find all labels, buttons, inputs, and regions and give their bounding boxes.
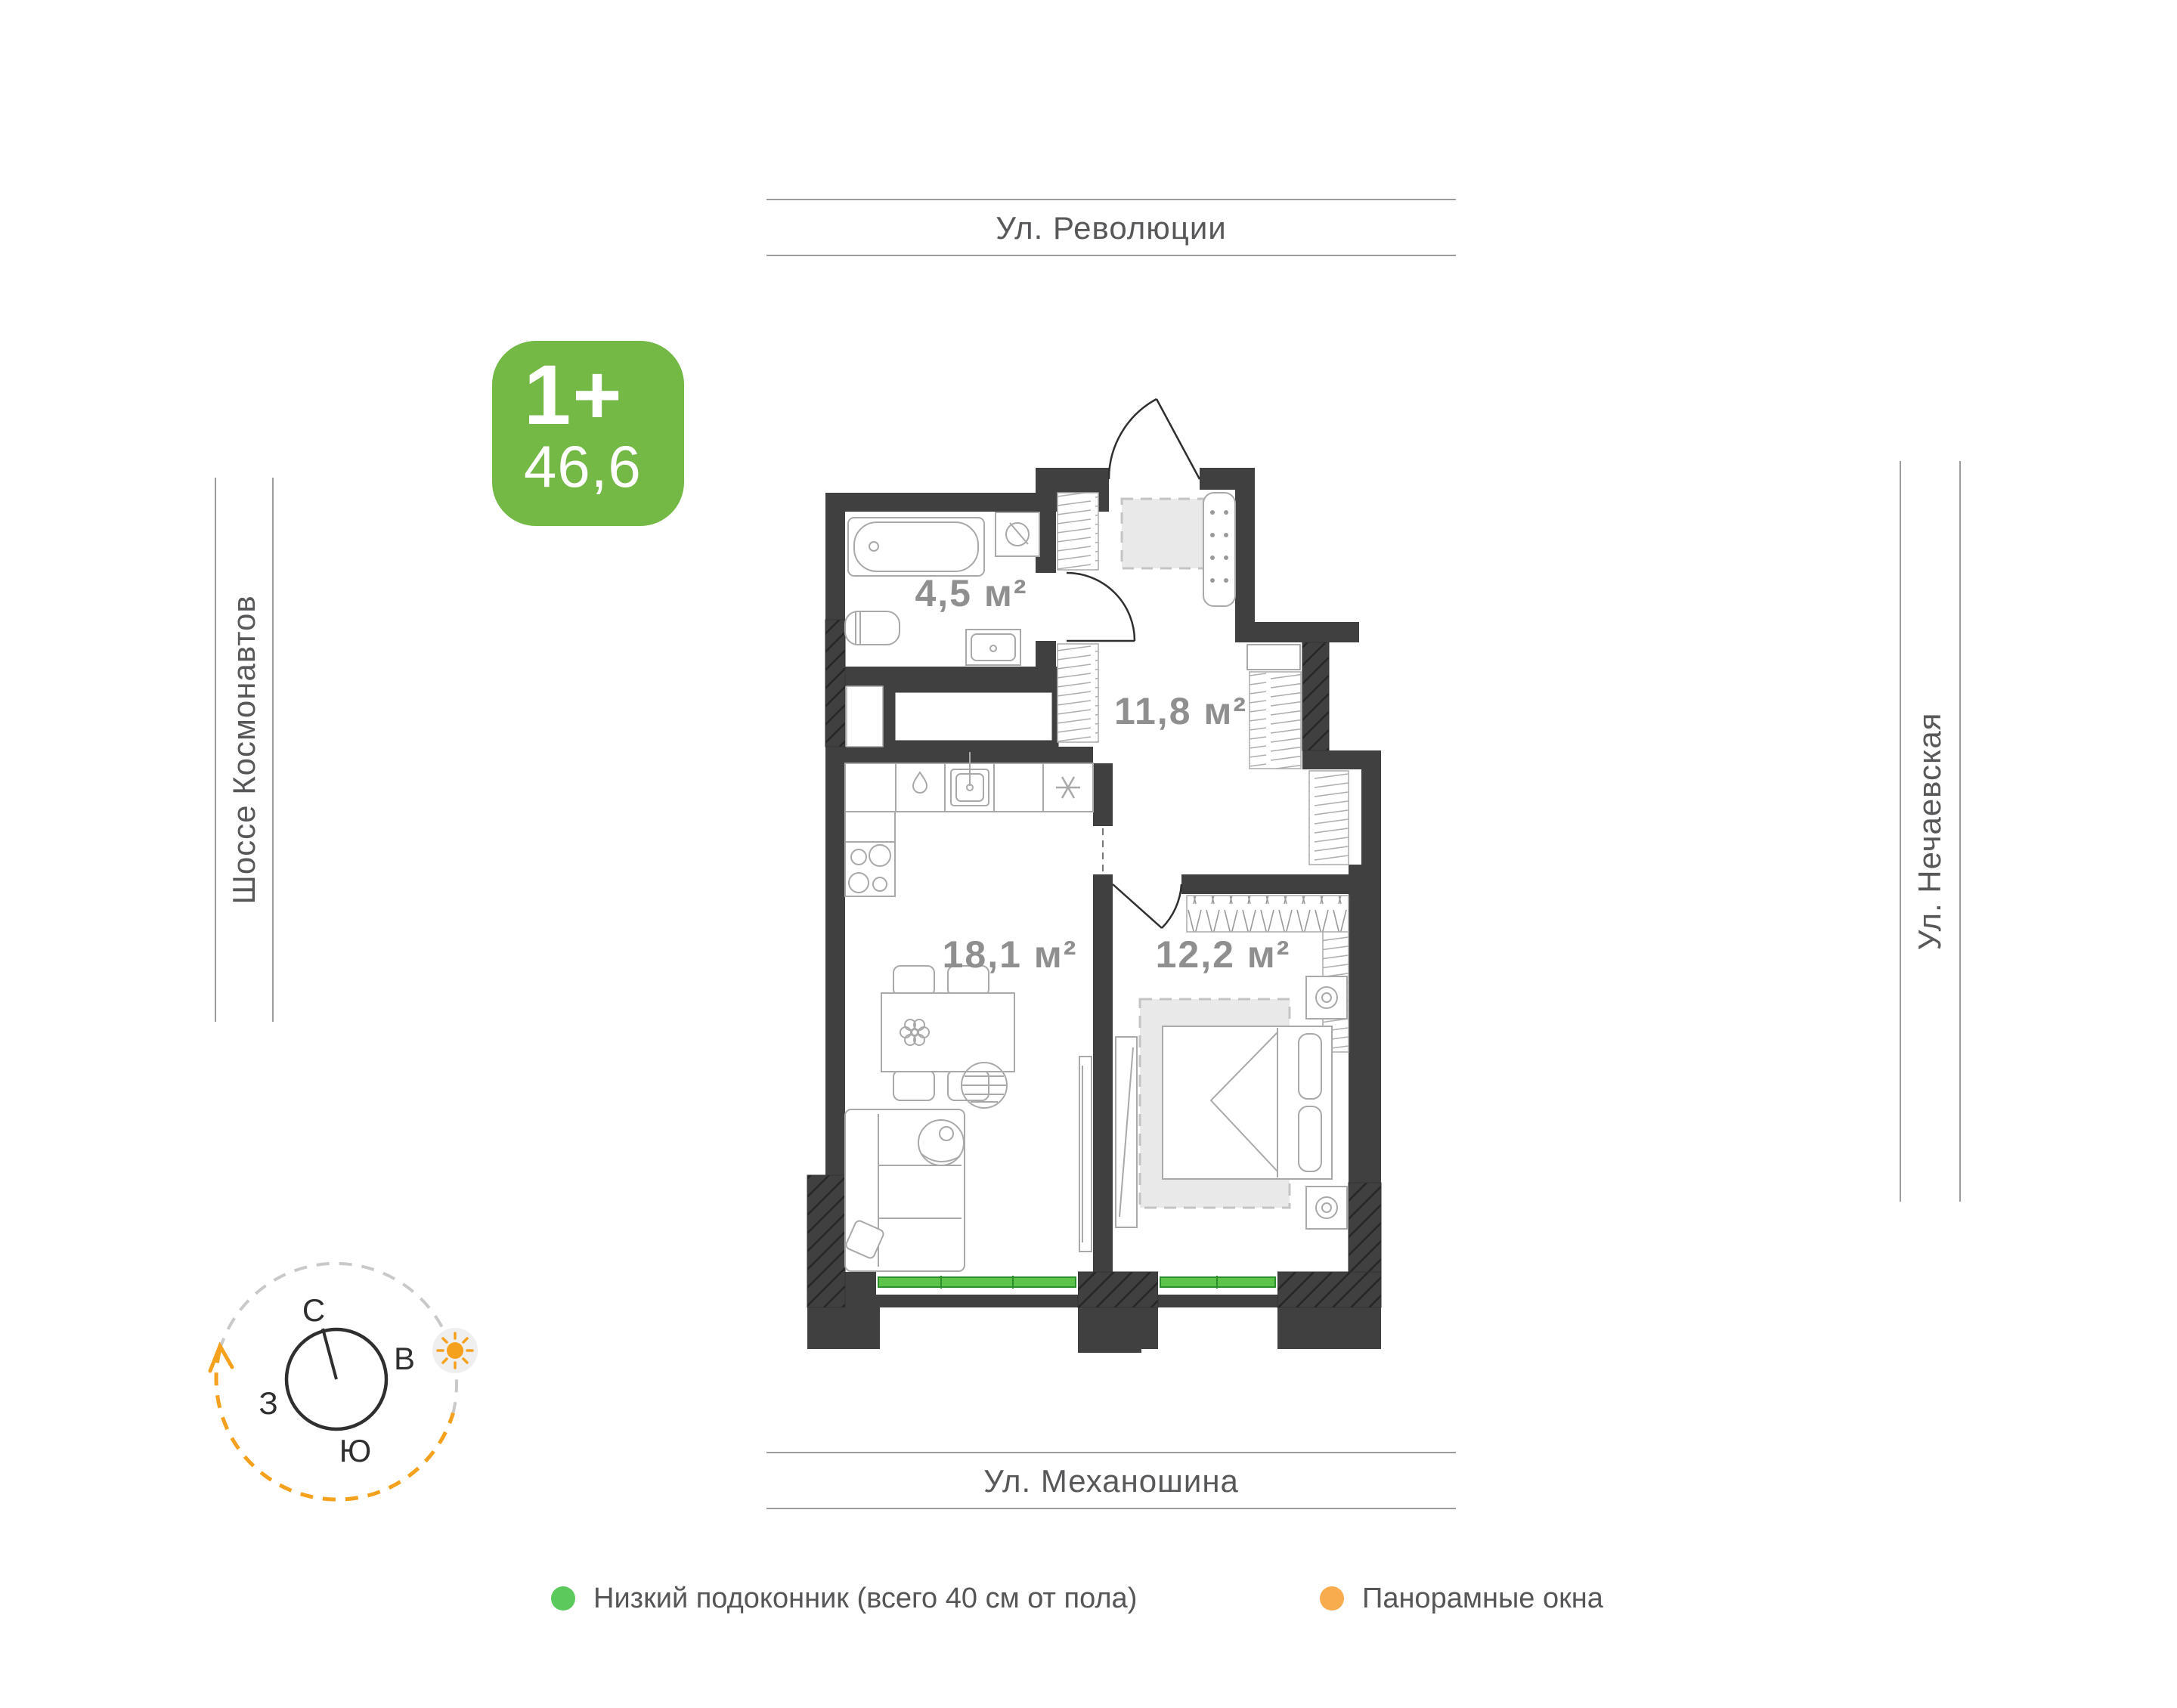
washing-machine-icon	[996, 512, 1039, 556]
dining-table	[881, 993, 1014, 1072]
room-area-bathroom: 4,5 м²	[915, 572, 1027, 614]
legend-item-low-sill: Низкий подоконник (всего 40 см от пола)	[551, 1581, 1137, 1616]
room-area-bedroom: 12,2 м²	[1156, 933, 1291, 976]
street-line-left-2	[272, 478, 274, 1022]
compass-north: С	[302, 1292, 325, 1328]
low-sill-dot-icon	[551, 1586, 575, 1611]
apartment-badge: 1+ 46,6	[492, 341, 684, 526]
nightstand-icon	[1306, 1187, 1347, 1229]
windows	[876, 1272, 1277, 1295]
street-line-right-2	[1959, 461, 1961, 1202]
kitchen-furniture	[845, 752, 1093, 896]
bathtub-icon	[848, 518, 984, 576]
compass-south: Ю	[339, 1433, 371, 1468]
street-line-top-2	[766, 255, 1456, 256]
legend-low-sill-label: Низкий подоконник (всего 40 см от пола)	[593, 1583, 1137, 1615]
legend-item-panoramic: Панорамные окна	[1320, 1581, 1603, 1616]
street-label-top: Ул. Революции	[766, 210, 1456, 246]
entry-door	[1109, 399, 1200, 492]
bathroom-door	[1034, 573, 1135, 641]
compass-arrow	[210, 1346, 232, 1371]
badge-total-area: 46,6	[524, 436, 684, 497]
wall-niche	[1247, 645, 1300, 670]
street-line-bottom-2	[766, 1508, 1456, 1509]
shoe-cabinet-icon	[1203, 493, 1235, 606]
storage-closet	[892, 689, 1055, 744]
street-line-right-1	[1900, 461, 1901, 1202]
page: Ул. Революции Ул. Механошина Шоссе Космо…	[0, 0, 2177, 1708]
street-label-bottom: Ул. Механошина	[766, 1463, 1456, 1499]
street-label-left: Шоссе Космонавтов	[226, 595, 262, 904]
legend-panoramic-label: Панорамные окна	[1362, 1583, 1603, 1615]
street-line-bottom-1	[766, 1452, 1456, 1453]
street-line-top-1	[766, 199, 1456, 200]
sun-icon	[432, 1328, 478, 1373]
compass: С В З Ю	[185, 1230, 488, 1533]
street-label-right: Ул. Нечаевская	[1912, 713, 1948, 951]
bedroom-furniture	[1116, 976, 1347, 1229]
room-area-hallway: 11,8 м²	[1114, 690, 1247, 732]
bedroom-door	[1113, 872, 1181, 928]
toilet-icon	[845, 611, 900, 645]
hall-rug	[1122, 499, 1206, 568]
compass-west: З	[259, 1385, 277, 1421]
dining-furniture	[881, 966, 1014, 1100]
window-living-low-sill	[878, 1277, 1076, 1287]
compass-east: В	[394, 1341, 415, 1376]
street-line-left-1	[215, 478, 216, 1022]
room-area-living: 18,1 м²	[943, 933, 1078, 976]
storage-niche	[847, 686, 883, 747]
tv-stand-icon	[1079, 1057, 1092, 1252]
panoramic-dot-icon	[1320, 1586, 1344, 1611]
badge-rooms-count: 1+	[524, 354, 684, 436]
hallway-furniture	[1122, 493, 1235, 606]
nightstand-icon	[1306, 976, 1347, 1019]
floor-plan: 4,5 м² 11,8 м² 18,1 м² 12,2 м²	[786, 363, 1391, 1353]
